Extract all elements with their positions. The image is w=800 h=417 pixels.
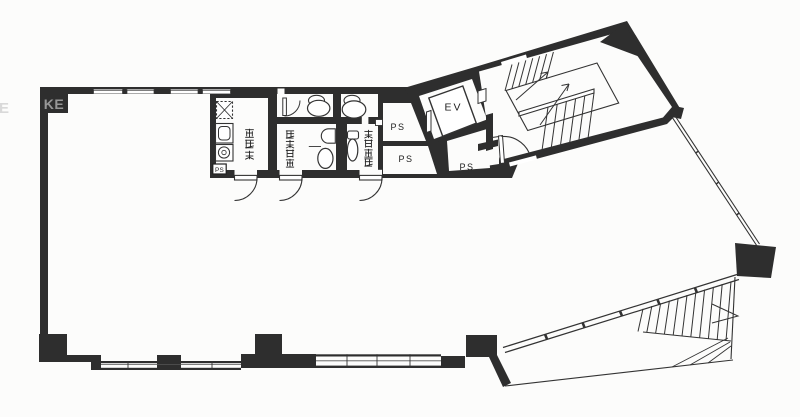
- svg-text:PS: PS: [459, 162, 474, 172]
- svg-text:PS: PS: [398, 154, 413, 164]
- svg-text:E: E: [0, 100, 9, 117]
- svg-text:EV: EV: [444, 102, 462, 114]
- svg-text:KE: KE: [44, 96, 64, 112]
- svg-text:PS: PS: [390, 122, 405, 132]
- svg-text:PS: PS: [215, 167, 224, 174]
